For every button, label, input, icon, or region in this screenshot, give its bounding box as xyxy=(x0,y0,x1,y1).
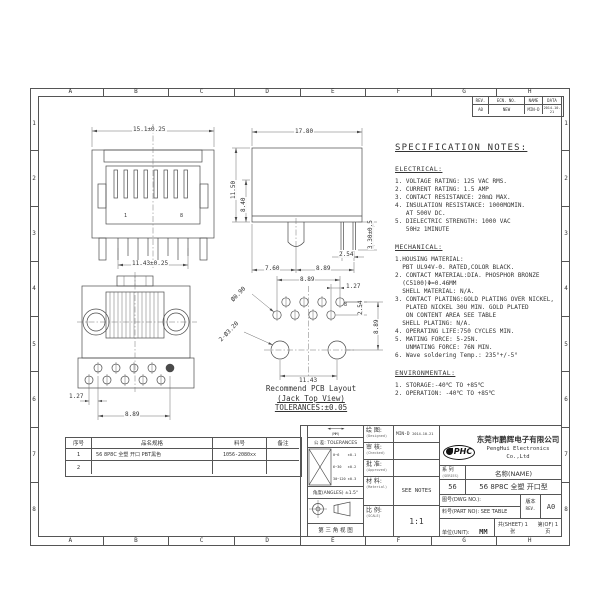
drawing-sheet: ABCDEFGH ABCDEFGH 12345678 12345678 REV.… xyxy=(30,88,570,546)
front-pin8-label: 8 xyxy=(180,214,183,219)
bottom-dim-span: 8.89 xyxy=(124,412,140,418)
electrical-notes: 1. VOLTAGE RATING: 125 VAC RMS.2. CURREN… xyxy=(395,178,563,234)
logo-crescent-icon xyxy=(446,448,453,455)
bottom-view: 1.27 8.89 xyxy=(62,272,212,427)
name-header-cell: 名称(NAME) xyxy=(466,466,561,480)
list-line: D xyxy=(234,88,300,96)
title-block-left-strip xyxy=(301,426,308,536)
logo-text: PHC xyxy=(454,447,472,456)
front-dim-width: 15.1±0.25 xyxy=(132,127,167,133)
pcb-caption: Recommend PCB Layout (Jack Top View) TOL… xyxy=(225,384,397,413)
list-line: PLATED NICKEL 30U MIN. GOLD PLATED xyxy=(395,304,563,312)
zone-numbers-right: 12345678 xyxy=(562,96,570,537)
list-line: C xyxy=(168,537,234,546)
unit-value: MM xyxy=(479,528,487,536)
tolerances-label: 公 差: TOLERANCES xyxy=(308,438,364,448)
third-angle-projection-icon xyxy=(308,499,356,519)
list-line: 2 xyxy=(30,150,38,205)
rev-label: 版本 xyxy=(521,495,540,506)
list-line: 8 xyxy=(562,482,570,537)
checked-label: 审 核: xyxy=(364,443,393,451)
pcb-dim-offset: 1.27 xyxy=(345,284,361,290)
parts-header-remark: 备注 xyxy=(267,438,299,449)
side-view: 17.80 11.50 8.40 3.30±0.5 7.60 8.89 2.54 xyxy=(222,120,390,280)
list-line: 5 xyxy=(30,316,38,371)
angles-tolerance-label: 角度(ANGLES) ±1.5° xyxy=(308,487,364,499)
scale-label-cell: 比 例: (SCALE) xyxy=(364,506,394,536)
approved-label: 批 准: xyxy=(364,460,393,468)
date-value: 2014-10-21 xyxy=(543,105,561,114)
designed-sublabel: (Designed) xyxy=(364,434,393,438)
side-dim-b3: 2.54 xyxy=(338,252,354,258)
designed-label: 绘 图: xyxy=(364,426,393,434)
pcb-dim-depth: 8.89 xyxy=(374,319,380,335)
tolerance-values: 0~6 ±0.16~30 ±0.230~120 ±0.3 xyxy=(333,449,363,485)
material-value-cell: SEE NOTES xyxy=(394,477,440,506)
list-line: D xyxy=(234,537,300,546)
list-line: SHELL MATERIAL: N/A. xyxy=(395,288,563,296)
rev-value: A0 xyxy=(473,105,489,114)
front-view: 15.1±0.25 11.43±0.25 1 8 xyxy=(68,120,238,270)
list-line: 1.HOUSING MATERIAL: xyxy=(395,256,563,264)
list-line: 3. CONTACT PLATING:GOLD PLATING OVER NIC… xyxy=(395,296,563,304)
series-value-cell: 56 xyxy=(440,480,466,495)
series-header-cell: 系 列 (SERIES) xyxy=(440,466,466,480)
ecn-header: ECN. NO. xyxy=(489,97,525,105)
mm-cell: ◄──────► (MM) xyxy=(308,426,364,438)
list-line: 2 xyxy=(562,150,570,205)
list-line: 50Hz 1MINUTE xyxy=(395,226,563,234)
parts-row1-remark xyxy=(267,449,299,461)
designed-value-cell: MIN-D 2014-10-21 xyxy=(394,426,440,443)
data-header: DATA xyxy=(543,97,561,105)
list-line: 7 xyxy=(562,427,570,482)
dwg-no-cell: 图号(DWG NO.): xyxy=(440,495,521,507)
side-dim-height: 11.50 xyxy=(231,180,237,200)
list-line: H xyxy=(496,537,562,546)
scale-label: 比 例: xyxy=(364,506,393,514)
parts-row2-name xyxy=(92,461,213,474)
list-line: AT 500V DC. xyxy=(395,210,563,218)
list-line: B xyxy=(103,537,169,546)
side-dim-height-inner: 8.40 xyxy=(241,197,247,213)
parts-row2-remark xyxy=(267,461,299,474)
list-line: 2. CURRENT RATING: 1.5 AMP xyxy=(395,186,563,194)
bottom-dim-pitch: 1.27 xyxy=(68,394,84,400)
list-line: A xyxy=(38,88,103,96)
series-sublabel: (SERIES) xyxy=(440,474,465,478)
electrical-heading: ELECTRICAL: xyxy=(395,165,563,173)
list-line: F xyxy=(365,537,431,546)
parts-header-partno: 料号 xyxy=(213,438,267,449)
revision-table: REV. ECN. NO. NAME DATA A0 NEW MIN-D 201… xyxy=(472,96,564,117)
tolerance-cross-icon xyxy=(308,448,332,486)
list-line: H xyxy=(496,88,562,96)
scale-sublabel: (SCALE) xyxy=(364,514,393,518)
zone-letters-bottom: ABCDEFGH xyxy=(38,537,562,546)
unit-cell: 单位(UNIT): MM xyxy=(440,519,495,536)
company-logo: PHC xyxy=(443,439,475,460)
mechanical-heading: MECHANICAL: xyxy=(395,243,563,251)
list-line: SHELL PLATING: N/A. xyxy=(395,320,563,328)
pcb-dim-row: 2.54 xyxy=(358,300,364,316)
ecn-value: NEW xyxy=(489,105,525,114)
list-line: 3. CONTACT RESISTANCE: 20mΩ MAX. xyxy=(395,194,563,202)
list-line: (C5100)Φ=0.46MM xyxy=(395,280,563,288)
designed-date: 2014-10-21 xyxy=(412,432,433,436)
list-line: 5 xyxy=(562,316,570,371)
company-cell: PHC 东莞市鹏辉电子有限公司 PengHui Electronics Co.,… xyxy=(440,426,561,466)
approved-label-cell: 批 准: (Approved) xyxy=(364,460,394,477)
parts-row1-index: 1 xyxy=(66,449,92,461)
parts-header-index: 序号 xyxy=(66,438,92,449)
title-block: ◄──────► (MM) 公 差: TOLERANCES 0~6 ±0.16~… xyxy=(300,425,562,537)
list-line: 7 xyxy=(30,427,38,482)
rev-label-cell: 版本 REV. xyxy=(521,495,541,519)
checked-label-cell: 审 核: (Checked) xyxy=(364,443,394,460)
approved-value-cell xyxy=(394,460,440,477)
list-line: 6 xyxy=(562,371,570,426)
material-sublabel: (Material) xyxy=(364,485,393,489)
pcb-caption-line3: TOLERANCES:±0.05 xyxy=(225,403,397,413)
list-line: 2. CONTACT MATERIAL:DIA. PHOSPHOR BRONZE xyxy=(395,272,563,280)
mm-label: (MM) xyxy=(308,432,363,436)
rev-value-cell: A0 xyxy=(541,495,561,519)
zone-letters-top: ABCDEFGH xyxy=(38,88,562,96)
environmental-heading: ENVIRONMENTAL: xyxy=(395,369,563,377)
front-dim-pin-span: 11.43±0.25 xyxy=(131,261,169,267)
side-dim-width: 17.80 xyxy=(294,129,314,135)
list-line: 5. MATING FORCE: 5-25N. xyxy=(395,336,563,344)
approved-sublabel: (Approved) xyxy=(364,468,393,472)
parts-table: 序号 品名规格 料号 备注 1 56 8P8C 全塑 开口 PBT黑色 1056… xyxy=(65,437,302,477)
sheet-count: 共(SHEET) 1 张 xyxy=(495,521,531,535)
list-line: 3 xyxy=(562,206,570,261)
list-line: 4 xyxy=(30,261,38,316)
bottom-view-drawing xyxy=(62,272,212,427)
designed-value: MIN-D xyxy=(396,432,410,437)
parts-row1-partno: 1056-2080xx xyxy=(213,449,267,461)
list-line: 6. Wave soldering Temp.: 235°+/-5° xyxy=(395,352,563,360)
part-no-cell: 料号(PART NO): SEE TABLE xyxy=(440,507,521,519)
product-name-cell: 56 8P8C 全塑 开口型 xyxy=(466,480,561,495)
list-line: 0~6 ±0.1 xyxy=(333,449,363,461)
spec-title: SPECIFICATION NOTES: xyxy=(395,143,563,153)
list-line: 4. OPERATING LIFE:750 CYCLES MIN. xyxy=(395,328,563,336)
list-line: 3 xyxy=(30,206,38,261)
list-line: 5. DIELECTRIC STRENGTH: 1000 VAC xyxy=(395,218,563,226)
environmental-notes: 1. STORAGE:-40℃ TO +85℃2. OPERATION: -40… xyxy=(395,382,563,398)
list-line: B xyxy=(103,88,169,96)
list-line: 6 xyxy=(30,371,38,426)
list-line: F xyxy=(365,88,431,96)
name-value: MIN-D xyxy=(525,105,543,114)
third-angle-label: 第 三 角 视 图 xyxy=(308,524,364,536)
parts-row2-index: 2 xyxy=(66,461,92,474)
checked-value-cell xyxy=(394,443,440,460)
unit-label: 单位(UNIT): xyxy=(442,530,470,536)
company-name-cn: 东莞市鹏辉电子有限公司 xyxy=(476,435,560,445)
list-line: G xyxy=(431,88,497,96)
zone-numbers-left: 12345678 xyxy=(30,96,38,537)
side-dim-pin-length: 3.30±0.5 xyxy=(368,219,374,250)
list-line: G xyxy=(431,537,497,546)
pcb-pin8-label: 8 xyxy=(344,303,347,308)
list-line: 4 xyxy=(562,261,570,316)
specification-notes: SPECIFICATION NOTES: ELECTRICAL: 1. VOLT… xyxy=(395,143,563,398)
rev-sublabel: REV. xyxy=(521,506,540,511)
mechanical-notes: 1.HOUSING MATERIAL: PBT UL94V-0. RATED,C… xyxy=(395,256,563,360)
scale-value-cell: 1:1 xyxy=(394,506,440,536)
parts-row2-partno xyxy=(213,461,267,474)
checked-sublabel: (Checked) xyxy=(364,451,393,455)
front-view-drawing xyxy=(68,120,238,270)
designed-label-cell: 绘 图: (Designed) xyxy=(364,426,394,443)
list-line: ON CONTENT AREA SEE TABLE xyxy=(395,312,563,320)
list-line: 1. VOLTAGE RATING: 125 VAC RMS. xyxy=(395,178,563,186)
list-line: 1. STORAGE:-40℃ TO +85℃ xyxy=(395,382,563,390)
projection-symbol-cell xyxy=(308,499,364,524)
list-line: E xyxy=(300,88,366,96)
pcb-caption-line1: Recommend PCB Layout xyxy=(225,384,397,394)
list-line: 1 xyxy=(30,96,38,150)
pcb-caption-line2: (Jack Top View) xyxy=(225,394,397,404)
list-line: 8 xyxy=(30,482,38,537)
parts-header-name: 品名规格 xyxy=(92,438,213,449)
tolerance-grid: 0~6 ±0.16~30 ±0.230~120 ±0.3 xyxy=(308,448,364,487)
parts-row1-name: 56 8P8C 全塑 开口 PBT黑色 xyxy=(92,449,213,461)
list-line: 30~120 ±0.3 xyxy=(333,473,363,485)
list-line: 2. OPERATION: -40℃ TO +85℃ xyxy=(395,390,563,398)
list-line: A xyxy=(38,537,103,546)
name-header: NAME xyxy=(525,97,543,105)
pcb-layout-view: 8.89 1.27 Ø0.90 2-Ø3.20 2.54 8.89 11.43 … xyxy=(222,272,397,402)
pcb-dim-span: 8.89 xyxy=(299,277,315,283)
front-pin1-label: 1 xyxy=(124,214,127,219)
series-label: 系 列 xyxy=(440,466,465,474)
sheet-count-cell: 共(SHEET) 1 张 第(OF) 1 页 xyxy=(495,519,561,536)
list-line: UNMATING FORCE: 76N MIN. xyxy=(395,344,563,352)
list-line: 4. INSULATION RESISTANCE: 1000MΩMIN. xyxy=(395,202,563,210)
material-label-cell: 材 料: (Material) xyxy=(364,477,394,506)
side-view-drawing xyxy=(222,120,390,280)
list-line: 6~30 ±0.2 xyxy=(333,461,363,473)
list-line: E xyxy=(300,537,366,546)
rev-header: REV. xyxy=(473,97,489,105)
list-line: C xyxy=(168,88,234,96)
company-name-en: PengHui Electronics Co.,Ltd xyxy=(476,445,560,461)
list-line: PBT UL94V-0. RATED,COLOR BLACK. xyxy=(395,264,563,272)
sheet-of: 第(OF) 1 页 xyxy=(535,521,561,535)
material-label: 材 料: xyxy=(364,477,393,485)
